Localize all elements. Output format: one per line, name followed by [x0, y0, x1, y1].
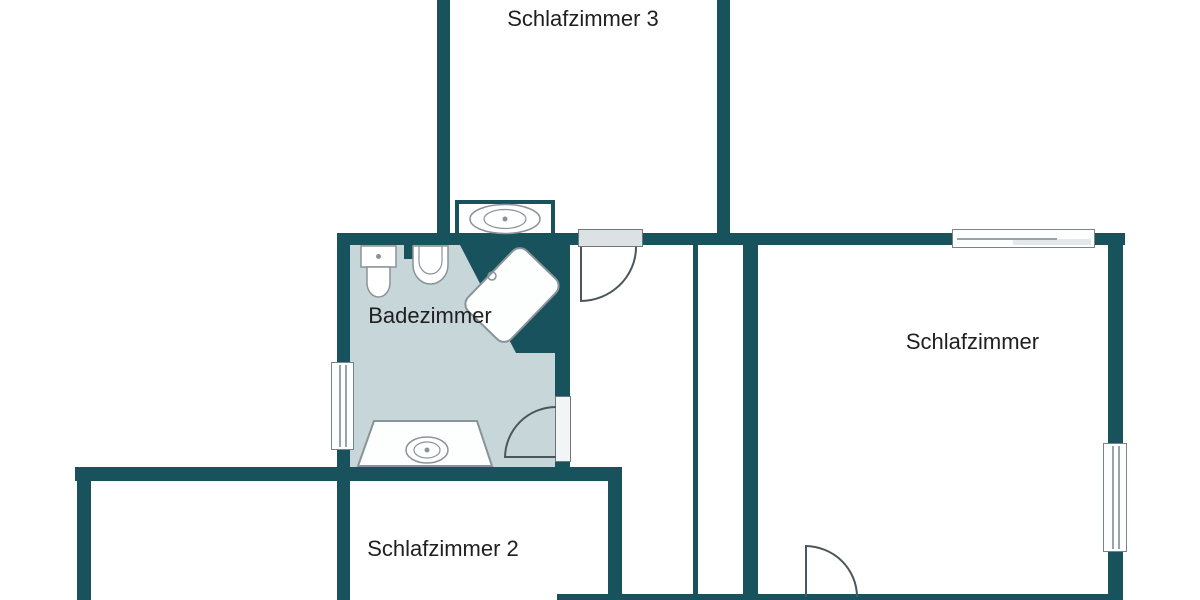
room-label-schlafzimmer-2: Schlafzimmer 2 [338, 537, 548, 561]
room-label-schlafzimmer: Schlafzimmer [880, 330, 1065, 354]
room-label-schlafzimmer-3: Schlafzimmer 3 [458, 7, 708, 31]
bedroom-window-right [1103, 443, 1127, 552]
bathroom-window-left [331, 362, 354, 450]
room-label-badezimmer: Badezimmer [330, 304, 530, 328]
bidet-icon [413, 246, 448, 284]
bedroom-window-top [952, 229, 1095, 248]
bathtub-icon [358, 421, 492, 466]
bathroom-door-panel [555, 396, 571, 462]
hall-door-panel [578, 229, 643, 247]
toilet-icon [361, 246, 396, 297]
floorplan-canvas: Schlafzimmer 3 Badezimmer Schlafzimmer S… [0, 0, 1200, 600]
fixture-partition-stub [404, 245, 413, 259]
washbasin-icon [470, 205, 540, 234]
